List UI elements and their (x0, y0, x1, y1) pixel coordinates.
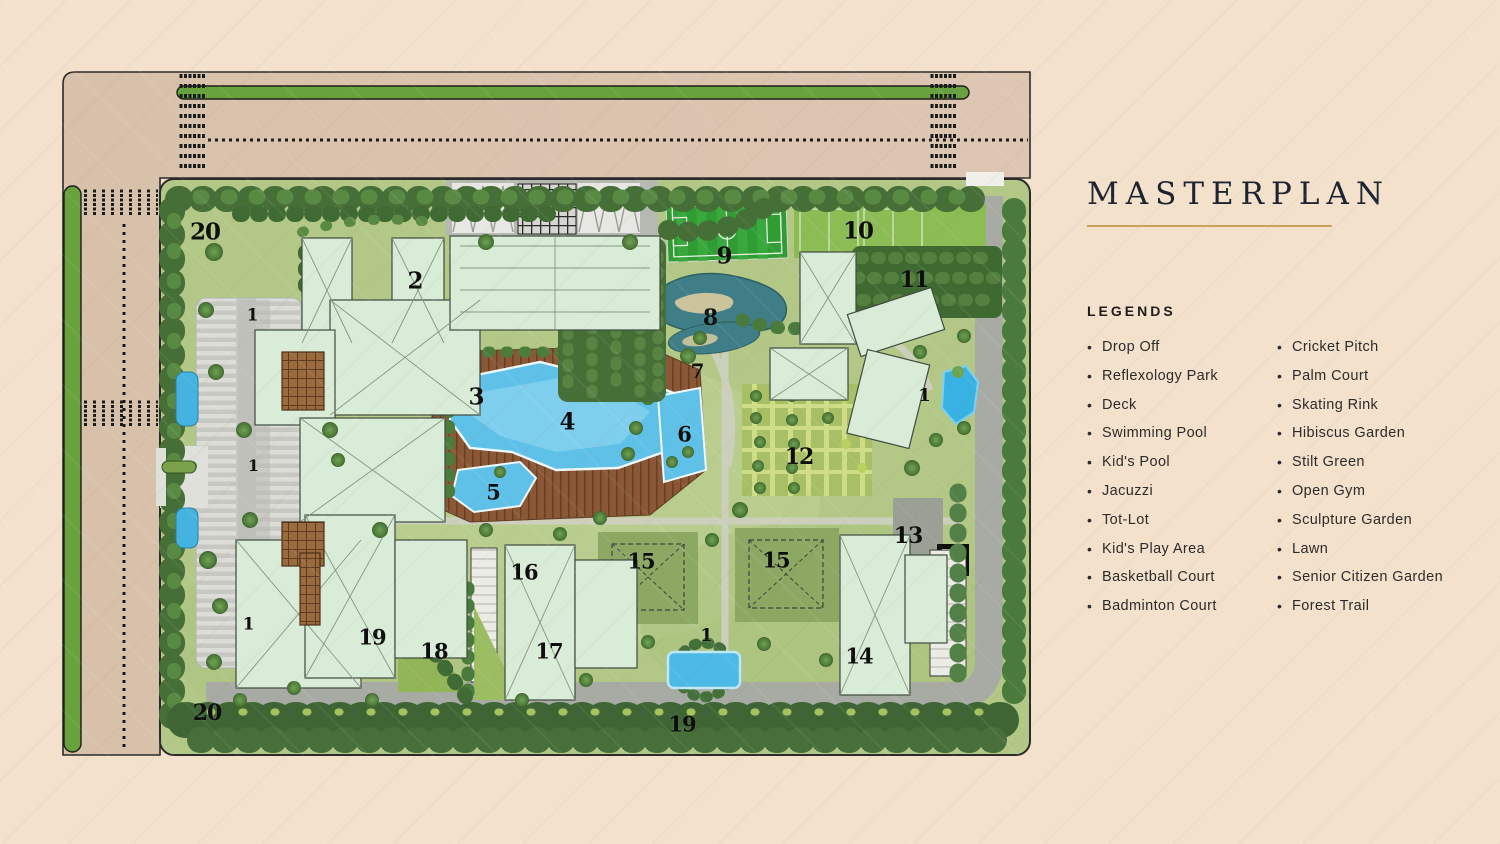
bullet-icon: • (1087, 569, 1102, 585)
masterplan-title: MASTERPLAN (1087, 176, 1477, 212)
bullet-icon: • (1277, 483, 1292, 499)
legend-item: •Palm Court (1277, 368, 1443, 397)
legend-item: •Open Gym (1277, 483, 1443, 512)
page: 2021910811734611251131615151918171141201… (0, 0, 1500, 844)
bullet-icon: • (1087, 598, 1102, 614)
legend-item: •Swimming Pool (1087, 425, 1277, 454)
legend-item: •Sculpture Garden (1277, 512, 1443, 541)
info-panel: MASTERPLAN LEGENDS •Drop Off •Reflexolog… (1087, 176, 1477, 627)
bullet-icon: • (1277, 512, 1292, 528)
bullet-icon: • (1277, 425, 1292, 441)
legend-item: •Tot-Lot (1087, 512, 1277, 541)
bullet-icon: • (1277, 339, 1292, 355)
bullet-icon: • (1277, 598, 1292, 614)
legend-item: •Jacuzzi (1087, 483, 1277, 512)
bullet-icon: • (1087, 541, 1102, 557)
bullet-icon: • (1277, 454, 1292, 470)
bullet-icon: • (1087, 512, 1102, 528)
legends-right-list: •Cricket Pitch •Palm Court •Skating Rink… (1277, 339, 1443, 627)
bullet-icon: • (1087, 368, 1102, 384)
bullet-icon: • (1087, 339, 1102, 355)
legend-item: •Kid's Play Area (1087, 541, 1277, 570)
bullet-icon: • (1087, 454, 1102, 470)
site-plan-illustration (0, 0, 1060, 844)
legend-item: •Hibiscus Garden (1277, 425, 1443, 454)
legend-item: •Basketball Court (1087, 569, 1277, 598)
legend-item: •Cricket Pitch (1277, 339, 1443, 368)
bullet-icon: • (1277, 368, 1292, 384)
legends-left-list: •Drop Off •Reflexology Park •Deck •Swimm… (1087, 339, 1277, 627)
title-underline (1087, 225, 1332, 227)
legends-heading: LEGENDS (1087, 303, 1477, 319)
bullet-icon: • (1087, 425, 1102, 441)
bullet-icon: • (1277, 569, 1292, 585)
legend-item: •Skating Rink (1277, 397, 1443, 426)
legend-item: •Badminton Court (1087, 598, 1277, 627)
legend-item: •Stilt Green (1277, 454, 1443, 483)
legend-item: •Deck (1087, 397, 1277, 426)
bullet-icon: • (1277, 541, 1292, 557)
legend-item: •Drop Off (1087, 339, 1277, 368)
bullet-icon: • (1087, 483, 1102, 499)
legend-item: •Senior Citizen Garden (1277, 569, 1443, 598)
bullet-icon: • (1277, 397, 1292, 413)
legends: •Drop Off •Reflexology Park •Deck •Swimm… (1087, 339, 1477, 627)
legend-item: •Kid's Pool (1087, 454, 1277, 483)
legend-item: •Forest Trail (1277, 598, 1443, 627)
legend-item: •Reflexology Park (1087, 368, 1277, 397)
bullet-icon: • (1087, 397, 1102, 413)
legend-item: •Lawn (1277, 541, 1443, 570)
